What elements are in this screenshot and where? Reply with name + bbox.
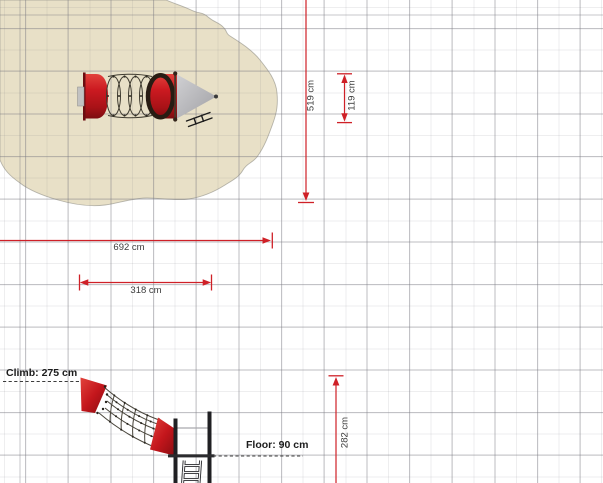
dim-label-area-height: 519 cm: [306, 74, 317, 118]
annotation-floor-height: Floor: 90 cm: [246, 439, 308, 451]
upper-net-cone: [81, 378, 108, 414]
right-frame-post: [208, 412, 212, 483]
left-red-tower: [86, 74, 109, 119]
access-ladder-top-view: [187, 113, 213, 127]
roof-apex-knob: [214, 95, 218, 99]
left-entry-tab: [78, 87, 85, 106]
artwork-layer: [0, 0, 603, 483]
dim-label-equipment-width: 318 cm: [116, 285, 176, 296]
dim-label-area-width: 692 cm: [99, 242, 159, 253]
annotation-climb-height: Climb: 275 cm: [6, 367, 77, 379]
equipment-side-view: [81, 378, 215, 483]
dim-label-equipment-depth: 119 cm: [347, 74, 358, 118]
floor-deck: [168, 454, 215, 457]
right-tower-post: [174, 72, 176, 121]
post-knob-bottom: [173, 117, 177, 121]
dim-label-total-height: 282 cm: [340, 411, 351, 455]
equipment-top-view: [78, 71, 219, 126]
access-ladder-side-view: [182, 461, 200, 483]
post-knob-top: [173, 71, 177, 75]
roof-triangle: [177, 75, 217, 119]
drawing-canvas: 519 cm 119 cm 692 cm 318 cm 282 cm Climb…: [0, 0, 603, 483]
left-frame-post: [174, 419, 178, 483]
